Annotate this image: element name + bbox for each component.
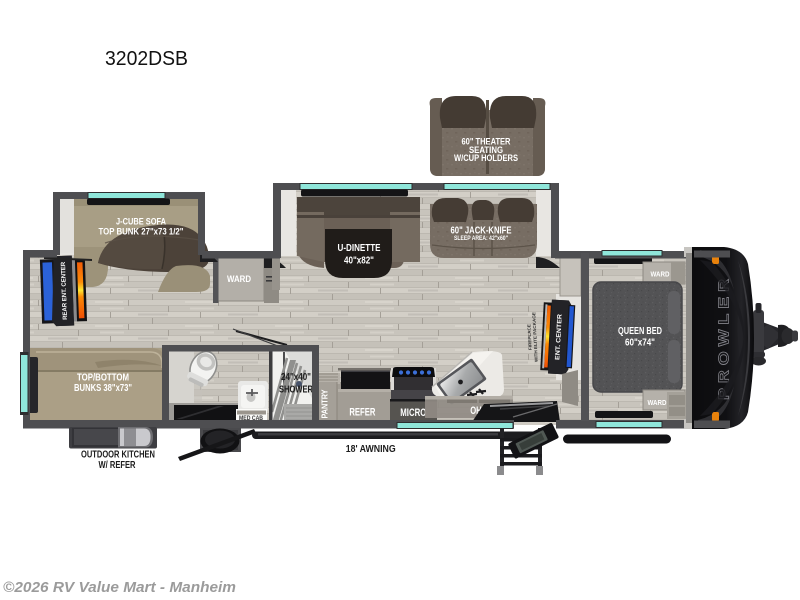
svg-text:W/CUP HOLDERS: W/CUP HOLDERS (454, 153, 518, 164)
svg-text:WARD: WARD (651, 272, 670, 279)
svg-text:3202DSB: 3202DSB (105, 48, 188, 70)
svg-text:BUNKS 38"x73": BUNKS 38"x73" (74, 382, 132, 394)
svg-text:REFER: REFER (349, 407, 375, 419)
svg-text:QUEEN BED: QUEEN BED (618, 325, 662, 337)
svg-text:60"x74": 60"x74" (625, 337, 655, 349)
svg-text:24"x40": 24"x40" (281, 371, 311, 383)
svg-text:OUTDOOR KITCHEN: OUTDOOR KITCHEN (81, 449, 155, 460)
svg-text:18' AWNING: 18' AWNING (346, 444, 396, 455)
svg-text:SLEEP AREA: 42"x60": SLEEP AREA: 42"x60" (454, 235, 508, 242)
svg-text:©2026 RV Value Mart - Manheim: ©2026 RV Value Mart - Manheim (3, 580, 236, 596)
svg-text:W/ REFER: W/ REFER (99, 460, 137, 471)
svg-text:WARD: WARD (227, 274, 251, 285)
svg-text:MICRO: MICRO (400, 407, 426, 419)
svg-text:U-DINETTE: U-DINETTE (338, 242, 381, 254)
svg-text:TOP BUNK 27"x73 1/2": TOP BUNK 27"x73 1/2" (99, 227, 184, 238)
svg-text:PANTRY: PANTRY (320, 389, 330, 418)
svg-text:40"x82": 40"x82" (344, 255, 374, 267)
svg-text:SHOWER: SHOWER (279, 384, 313, 396)
svg-text:WARD: WARD (648, 400, 667, 407)
